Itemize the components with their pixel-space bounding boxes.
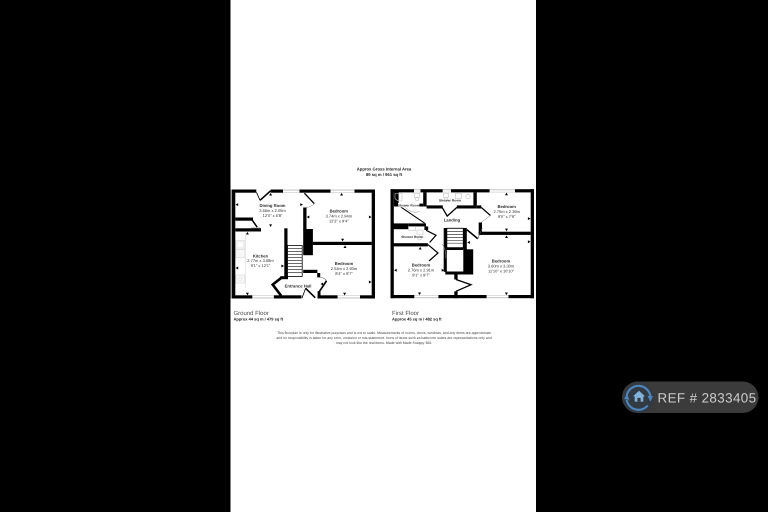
svg-text:Approx 45 sq m / 482 sq ft: Approx 45 sq m / 482 sq ft bbox=[392, 317, 442, 322]
svg-text:Entrance Hall: Entrance Hall bbox=[285, 284, 312, 289]
svg-text:9'1" x 9'7": 9'1" x 9'7" bbox=[412, 272, 430, 277]
svg-text:may not look like the real ite: may not look like the real items. Made w… bbox=[336, 341, 432, 345]
svg-text:11'10" x 10'10": 11'10" x 10'10" bbox=[488, 268, 515, 273]
svg-text:and no responsibility is taken: and no responsibility is taken for any e… bbox=[276, 336, 491, 340]
svg-text:Approx 44 sq m / 479 sq ft: Approx 44 sq m / 479 sq ft bbox=[234, 317, 284, 322]
svg-text:9'1" x 12'1": 9'1" x 12'1" bbox=[251, 263, 271, 268]
svg-text:REF # 2833405: REF # 2833405 bbox=[658, 391, 757, 406]
svg-text:8'4" x 9'7": 8'4" x 9'7" bbox=[335, 271, 353, 276]
svg-text:9'0" x 7'9": 9'0" x 7'9" bbox=[498, 214, 516, 219]
svg-text:12'0" x 6'8": 12'0" x 6'8" bbox=[263, 213, 283, 218]
svg-text:Shower Room: Shower Room bbox=[439, 198, 461, 202]
svg-text:Landing: Landing bbox=[444, 218, 461, 223]
svg-text:This floorplan is only for ill: This floorplan is only for illustrative … bbox=[277, 331, 491, 335]
svg-text:Shower Room: Shower Room bbox=[401, 235, 423, 239]
svg-text:89 sq m / 961 sq ft: 89 sq m / 961 sq ft bbox=[366, 172, 403, 177]
svg-text:Shower Room: Shower Room bbox=[398, 204, 420, 208]
svg-text:12'3" x 9'4": 12'3" x 9'4" bbox=[329, 218, 349, 223]
